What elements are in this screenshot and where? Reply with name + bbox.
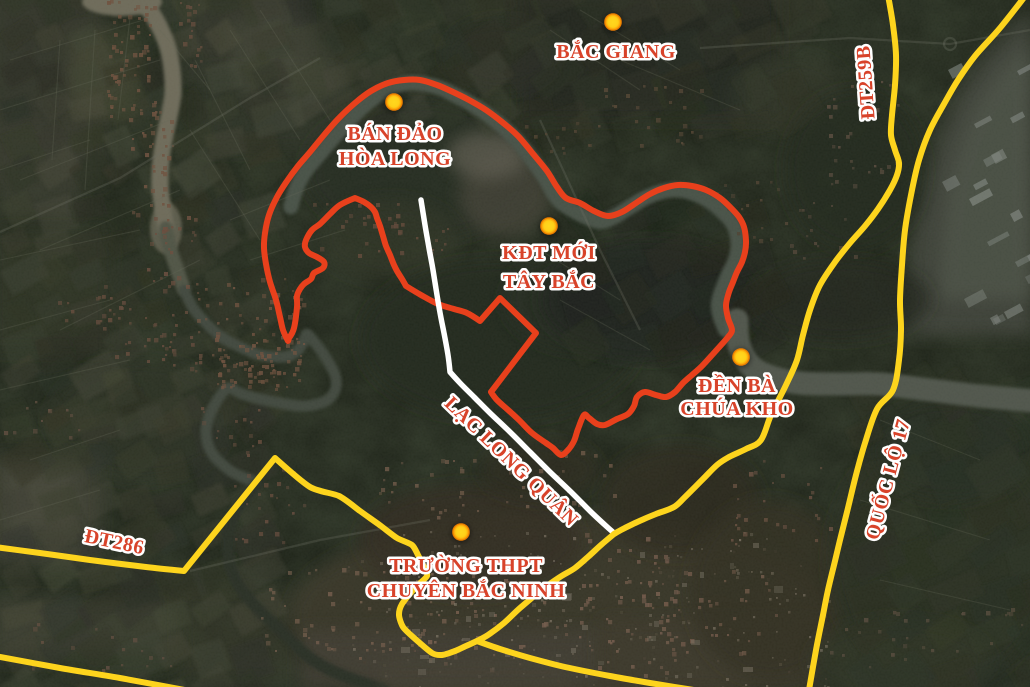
svg-text:CHUYÊN BẮC NINH: CHUYÊN BẮC NINH bbox=[367, 578, 566, 602]
svg-text:ĐỀN BÀ: ĐỀN BÀ bbox=[698, 373, 776, 397]
svg-text:TRƯỜNG THPT: TRƯỜNG THPT bbox=[389, 553, 543, 577]
svg-text:CHÚA KHO: CHÚA KHO bbox=[680, 396, 793, 420]
svg-text:BÁN ĐẢO: BÁN ĐẢO bbox=[347, 122, 442, 145]
svg-text:HÒA LONG: HÒA LONG bbox=[339, 146, 451, 170]
svg-text:KĐT MỚI: KĐT MỚI bbox=[502, 240, 596, 264]
svg-text:TÂY BẮC: TÂY BẮC bbox=[503, 269, 595, 293]
svg-text:BẮC GIANG: BẮC GIANG bbox=[556, 39, 676, 63]
